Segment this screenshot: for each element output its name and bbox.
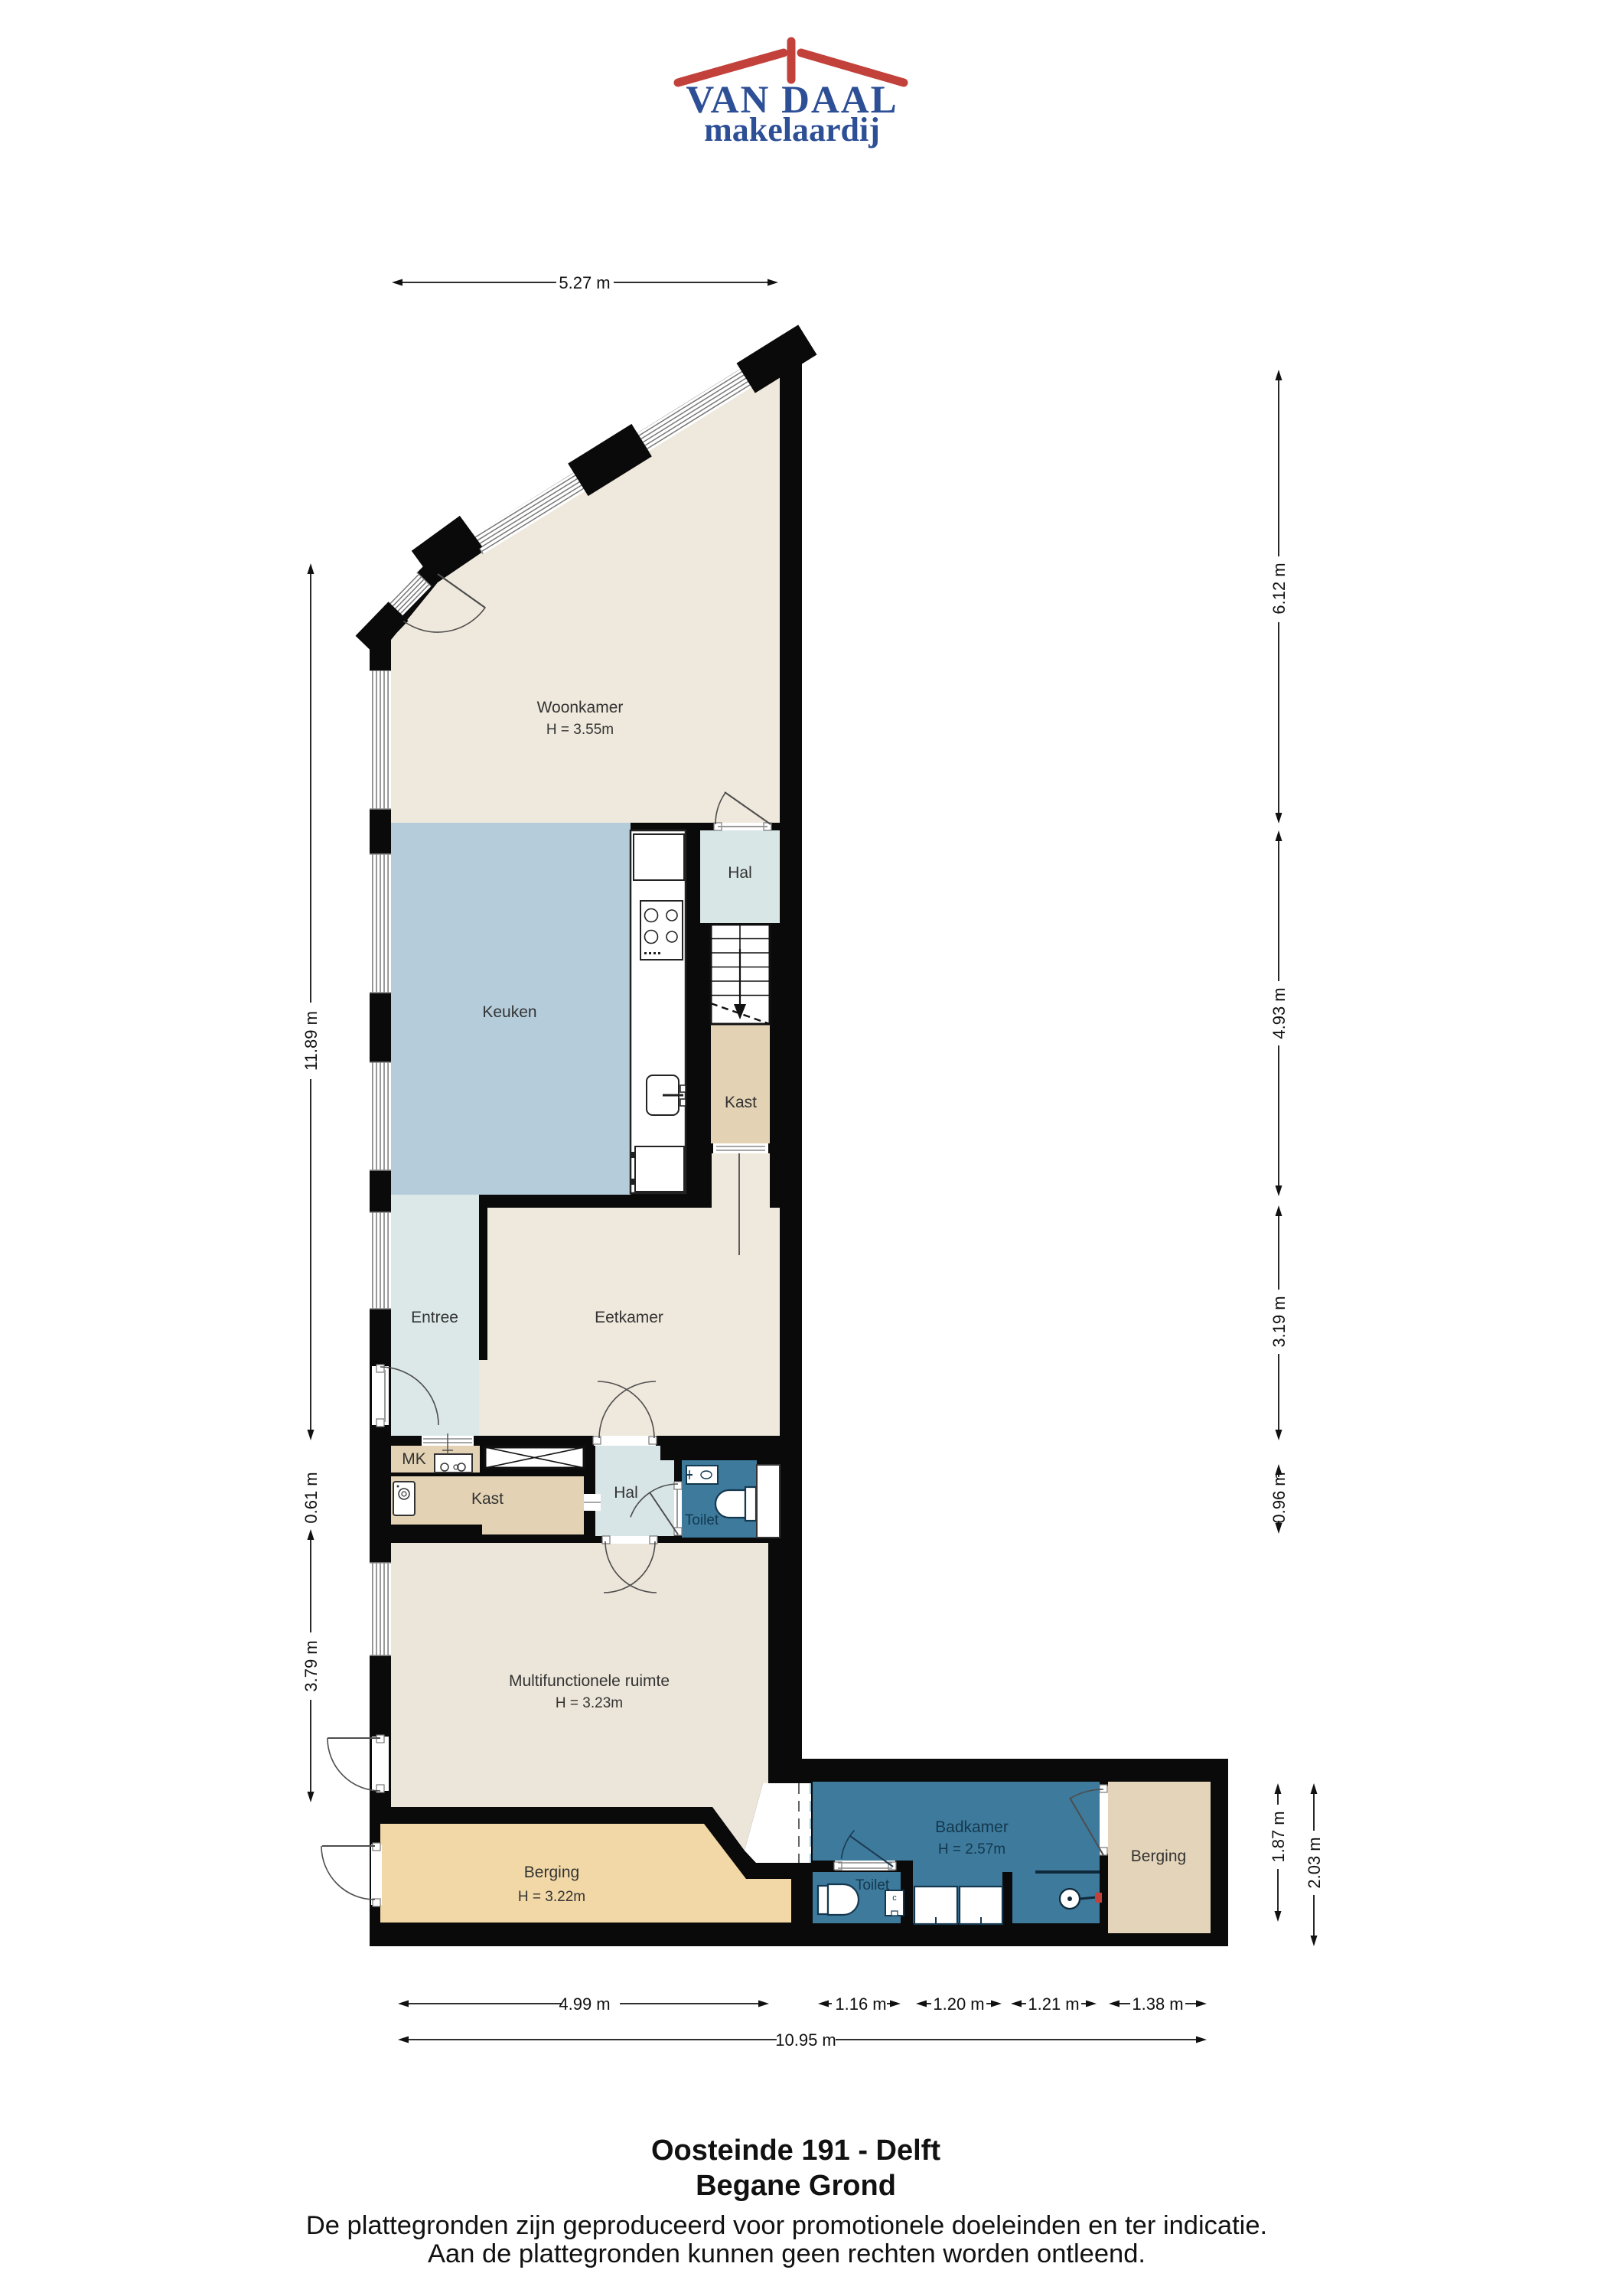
svg-text:Eetkamer: Eetkamer <box>595 1309 663 1326</box>
svg-text:H = 3.55m: H = 3.55m <box>546 722 614 738</box>
svg-text:1.87 m: 1.87 m <box>1269 1811 1288 1862</box>
svg-text:Begane Grond: Begane Grond <box>696 2170 896 2202</box>
svg-text:Toilet: Toilet <box>685 1512 719 1528</box>
svg-text:3.79 m: 3.79 m <box>301 1640 321 1691</box>
svg-text:Keuken: Keuken <box>482 1003 536 1021</box>
svg-text:H = 3.23m: H = 3.23m <box>556 1695 623 1711</box>
svg-text:4.93 m: 4.93 m <box>1269 987 1289 1039</box>
svg-text:H = 2.57m: H = 2.57m <box>938 1841 1005 1857</box>
svg-text:11.89 m: 11.89 m <box>301 1011 321 1071</box>
svg-text:3.19 m: 3.19 m <box>1269 1296 1289 1347</box>
svg-text:6.12 m: 6.12 m <box>1269 563 1289 614</box>
svg-text:5.27 m: 5.27 m <box>559 273 610 292</box>
svg-text:Multifunctionele ruimte: Multifunctionele ruimte <box>509 1672 670 1690</box>
svg-text:1.20 m: 1.20 m <box>933 1994 984 2014</box>
svg-text:Kast: Kast <box>471 1490 504 1508</box>
svg-text:Woonkamer: Woonkamer <box>537 699 624 716</box>
svg-text:De plattegronden zijn geproduc: De plattegronden zijn geproduceerd voor … <box>306 2211 1267 2240</box>
svg-text:1.38 m: 1.38 m <box>1132 1994 1183 2014</box>
svg-text:0.61 m: 0.61 m <box>301 1472 321 1523</box>
svg-text:Berging: Berging <box>1131 1848 1186 1865</box>
svg-text:Oosteinde 191 - Delft: Oosteinde 191 - Delft <box>651 2135 940 2167</box>
svg-text:Berging: Berging <box>524 1864 579 1881</box>
svg-text:Toilet: Toilet <box>855 1877 890 1893</box>
svg-text:4.99 m: 4.99 m <box>559 1994 610 2014</box>
svg-text:Hal: Hal <box>728 864 752 882</box>
svg-text:10.95 m: 10.95 m <box>775 2030 836 2050</box>
svg-text:H = 3.22m: H = 3.22m <box>518 1889 585 1905</box>
svg-text:0.96 m: 0.96 m <box>1269 1472 1289 1523</box>
svg-text:2.03 m: 2.03 m <box>1305 1837 1324 1888</box>
svg-text:makelaardij: makelaardij <box>704 111 880 148</box>
svg-text:MK: MK <box>402 1450 426 1468</box>
svg-text:c: c <box>892 1893 897 1903</box>
svg-text:Hal: Hal <box>614 1484 638 1502</box>
svg-text:Kast: Kast <box>725 1094 757 1111</box>
svg-text:Entree: Entree <box>411 1309 458 1326</box>
svg-text:Aan de plattegronden kunnen ge: Aan de plattegronden kunnen geen rechten… <box>428 2239 1146 2268</box>
svg-text:Badkamer: Badkamer <box>935 1818 1009 1836</box>
svg-text:1.16 m: 1.16 m <box>835 1994 886 2014</box>
svg-text:1.21 m: 1.21 m <box>1028 1994 1079 2014</box>
